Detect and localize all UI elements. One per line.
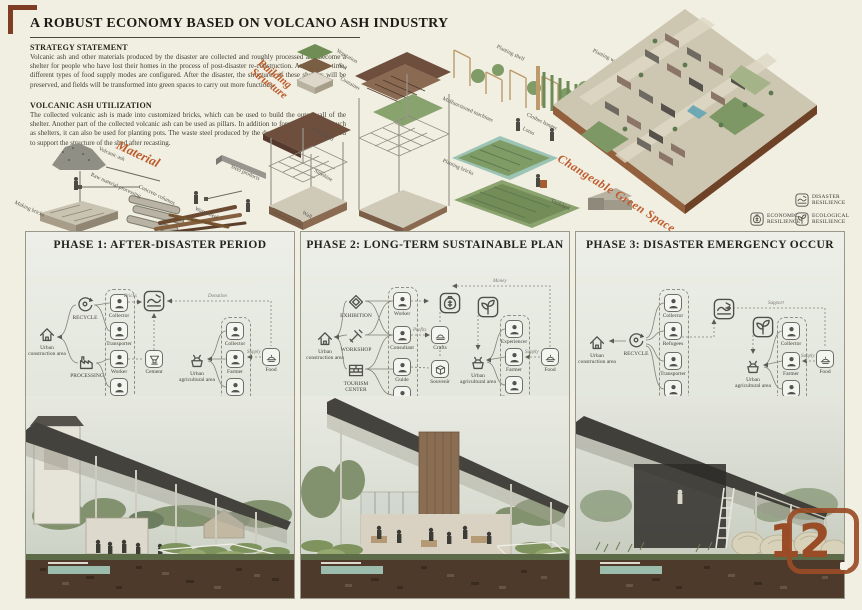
disaster-logo-icon [143,290,165,312]
site-plan [545,5,825,220]
node-collector-right: Collector [215,322,255,347]
phase-2-render [301,396,569,598]
bricks-icon [346,360,366,380]
disaster-logo-icon [713,298,735,320]
flow-label: Money [493,279,507,284]
house-icon [315,328,335,348]
food-plate-icon [816,350,834,368]
person-icon [226,350,244,368]
node-ecological-logo [468,296,508,318]
node-recycle: RECYCLE [616,330,656,357]
person-icon [226,378,244,396]
legend-economic: ECONOMICRESILIENCE [750,212,800,226]
phase-1-render [26,396,294,598]
flow-label: Supply [801,354,815,359]
node-refugees: Refugees [653,322,693,347]
phase-2-panel: PHASE 2: LONG-TERM SUSTAINABLE PLAN [300,231,570,599]
flow-label: Support [768,301,784,306]
phase-3-title: PHASE 3: DISASTER EMERGENCY OCCUR [576,239,844,251]
phase-1-flow: Urban construction area RECYCLE PROCESSI… [26,256,294,396]
flow-label: Profits [413,328,426,333]
flow-label: Supply [525,350,539,355]
ecological-resilience-icon [795,212,809,226]
node-urban-construction: Urban construction area [27,324,67,357]
person-icon [505,376,523,394]
page-title: A ROBUST ECONOMY BASED ON VOLCANO ASH IN… [30,16,450,32]
economic-resilience-icon [750,212,764,226]
cement-machine-icon [145,350,163,368]
person-icon [110,350,128,368]
phase-2-flow: Urban construction area EXHIBITION WORKS… [301,256,569,396]
souvenir-box-icon [431,360,449,378]
harvest-basket-icon [743,356,763,376]
phase-1-title: PHASE 1: AFTER-DISASTER PERIOD [26,239,294,251]
node-disaster-logo [704,298,744,320]
node-experiencer: Experiencer [494,320,534,345]
node-urban-construction: Urban construction area [577,332,617,365]
phase-2-title: PHASE 2: LONG-TERM SUSTAINABLE PLAN [301,239,569,251]
node-urban-agricultural: Urban agricultural area [177,350,217,383]
crafts-hat-icon [431,326,449,344]
person-icon [393,358,411,376]
person-icon [782,352,800,370]
phase-1-panel: PHASE 1: AFTER-DISASTER PERIOD [25,231,295,599]
node-worker: Worker [382,292,422,317]
utilization-heading: VOLCANIC ASH UTILIZATION [30,101,152,110]
node-transporter: Transporter [99,322,139,347]
food-plate-icon [262,348,280,366]
node-transporter: Transporter [653,352,693,377]
house-icon [37,324,57,344]
factory-icon [77,352,97,372]
legend-disaster: DISASTERRESILIENCE [795,193,845,207]
person-icon [393,292,411,310]
person-icon [110,378,128,396]
node-collector: Collector [653,294,693,319]
strategy-heading: STRATEGY STATEMENT [30,43,128,52]
person-icon [226,322,244,340]
flow-label: Bricks [124,294,137,299]
person-icon [505,320,523,338]
node-worker: Worker [99,350,139,375]
person-icon [110,322,128,340]
disaster-resilience-icon [795,193,809,207]
building-structure-diagram [255,38,465,234]
node-exhibition: EXHIBITION [336,292,376,319]
economic-logo-icon [439,292,461,314]
harvest-basket-icon [187,350,207,370]
phase-3-flow: Urban construction area RECYCLE Collecto… [576,256,844,396]
node-collector-right: Collector [771,322,811,347]
flow-label: Donation [208,294,227,299]
node-tourism-center: TOURISM CENTER [336,360,376,393]
workshop-tools-icon [346,326,366,346]
board-number-frame [787,508,859,574]
person-icon [782,322,800,340]
food-plate-icon [541,348,559,366]
node-economic-logo [430,292,470,314]
poster-board: A ROBUST ECONOMY BASED ON VOLCANO ASH IN… [0,0,862,610]
recycle-icon [75,294,95,314]
person-icon [664,352,682,370]
exhibition-icon [346,292,366,312]
harvest-basket-icon [468,352,488,372]
recycle-icon [626,330,646,350]
node-workshop: WORKSHOP [336,326,376,353]
flow-label: Supply [247,350,261,355]
person-icon [393,326,411,344]
node-disaster-logo [134,290,174,312]
ecological-logo-icon [477,296,499,318]
node-cement: Cement [134,350,174,375]
person-icon [664,322,682,340]
node-guide: Guide [382,358,422,383]
node-urban-agricultural: Urban agricultural area [733,356,773,389]
person-icon [664,294,682,312]
node-urban-agricultural: Urban agricultural area [458,352,498,385]
house-icon [587,332,607,352]
node-souvenir: Souvenir [420,360,460,385]
person-icon [505,348,523,366]
legend-ecological: ECOLOGICALRESILIENCE [795,212,849,226]
board-number-dot [840,562,848,570]
